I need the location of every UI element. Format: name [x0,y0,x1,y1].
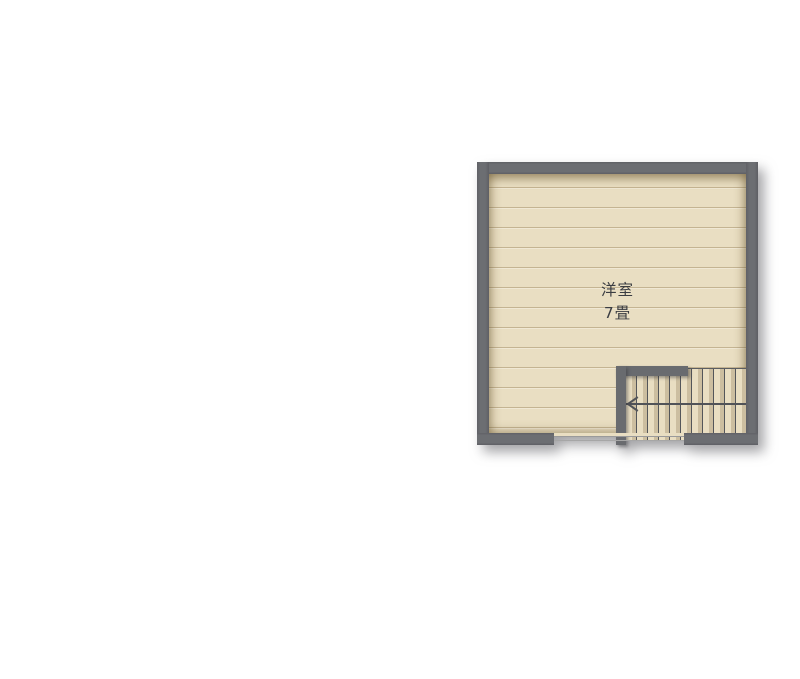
staircase-treads [626,368,747,433]
wall-top [477,162,758,174]
room-size: 7畳 [477,302,758,325]
bottom-opening-line [554,436,684,437]
stair-direction-line [626,403,747,405]
room-name: 洋室 [477,279,758,302]
wall-bottom-right [684,433,758,445]
stair-interior-wall-top [616,366,688,376]
floor-plan: 洋室 7畳 [477,162,758,445]
bottom-opening-line [554,440,684,441]
wall-bottom-left [477,433,554,445]
room-label: 洋室 7畳 [477,279,758,325]
